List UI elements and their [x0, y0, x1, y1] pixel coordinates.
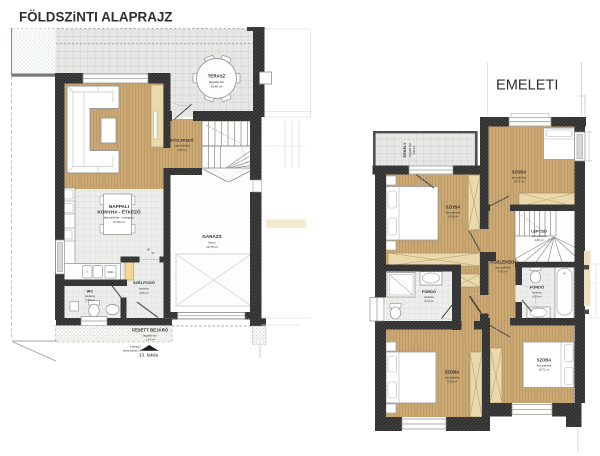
svg-text:átrás kuntár 14: átrás kuntár 14 — [123, 349, 141, 353]
svg-text:beton: beton — [209, 241, 216, 245]
svg-text:FEDETT BEJÁRÓ: FEDETT BEJÁRÓ — [132, 328, 169, 333]
svg-text:laja parketta: laja parketta — [175, 144, 190, 148]
svg-text:FÜRDŐ: FÜRDŐ — [422, 289, 436, 294]
svg-text:lam.parketta: lam.parketta — [537, 364, 552, 368]
svg-text:LÉPCSŐ: LÉPCSŐ — [531, 229, 547, 234]
svg-text:SZÉLFOGÓ: SZÉLFOGÓ — [133, 280, 155, 285]
svg-text:KÖZLEKEDŐ: KÖZLEKEDŐ — [170, 138, 193, 143]
svg-text:lam.parketta: lam.parketta — [512, 176, 527, 180]
svg-text:EMELETI: EMELETI — [496, 78, 558, 94]
svg-text:5,14 m²: 5,14 m² — [424, 299, 433, 303]
svg-text:SZOBA: SZOBA — [446, 205, 461, 210]
svg-text:ERKÉLY: ERKÉLY — [402, 142, 407, 158]
svg-text:19,40 m²: 19,40 m² — [211, 85, 223, 89]
svg-text:szoveg 2: szoveg 2 — [130, 345, 141, 349]
svg-text:lam.parketta: lam.parketta — [446, 211, 461, 215]
svg-text:2,62 m²: 2,62 m² — [85, 298, 95, 302]
svg-text:SZOBA: SZOBA — [537, 358, 552, 363]
svg-text:16,71 m²: 16,71 m² — [539, 368, 550, 372]
svg-text:lam.parketta: lam.parketta — [532, 234, 547, 238]
svg-text:1,34 m²: 1,34 m² — [145, 338, 155, 342]
svg-text:TERASZ: TERASZ — [208, 74, 226, 79]
svg-text:fagyálló bur: fagyálló bur — [408, 143, 412, 157]
svg-text:3,06 m²: 3,06 m² — [139, 291, 149, 295]
svg-text:NAPPALI: NAPPALI — [109, 204, 129, 209]
svg-text:5,41 m²: 5,41 m² — [498, 270, 508, 274]
svg-text:4,28 m²: 4,28 m² — [534, 238, 543, 242]
svg-text:SU21: SU21 — [107, 270, 114, 274]
svg-text:fagyálló bur: fagyálló bur — [209, 80, 225, 84]
svg-text:lam.parketta: lam.parketta — [445, 376, 460, 380]
svg-text:2,52 m²: 2,52 m² — [177, 148, 187, 152]
svg-text:KONYHA - ÉTKEZŐ: KONYHA - ÉTKEZŐ — [97, 208, 141, 215]
svg-text:laja parketta - melegbur.: laja parketta - melegbur. — [104, 216, 134, 220]
svg-text:13. lakás: 13. lakás — [139, 353, 159, 359]
svg-text:WC: WC — [87, 289, 94, 294]
svg-text:FÖLDSZiNTI ALAPRAJZ: FÖLDSZiNTI ALAPRAJZ — [19, 10, 173, 25]
svg-text:kerámia: kerámia — [424, 295, 434, 299]
svg-text:4,90 m²: 4,90 m² — [532, 295, 541, 299]
svg-text:16,15 m²: 16,15 m² — [447, 380, 458, 384]
svg-text:27,84 m²: 27,84 m² — [113, 220, 125, 224]
svg-text:14,28 m²: 14,28 m² — [448, 215, 459, 219]
svg-text:GARÁZS: GARÁZS — [202, 233, 221, 239]
svg-text:SZOBA: SZOBA — [445, 370, 460, 375]
svg-text:FÜRDŐ: FÜRDŐ — [530, 285, 544, 290]
svg-text:kerámia: kerámia — [139, 287, 149, 291]
svg-text:10,71 m²: 10,71 m² — [514, 180, 525, 184]
svg-text:SZOBA: SZOBA — [512, 170, 527, 175]
svg-text:3,60 m²: 3,60 m² — [412, 145, 416, 154]
svg-text:16,75 m²: 16,75 m² — [206, 245, 218, 249]
